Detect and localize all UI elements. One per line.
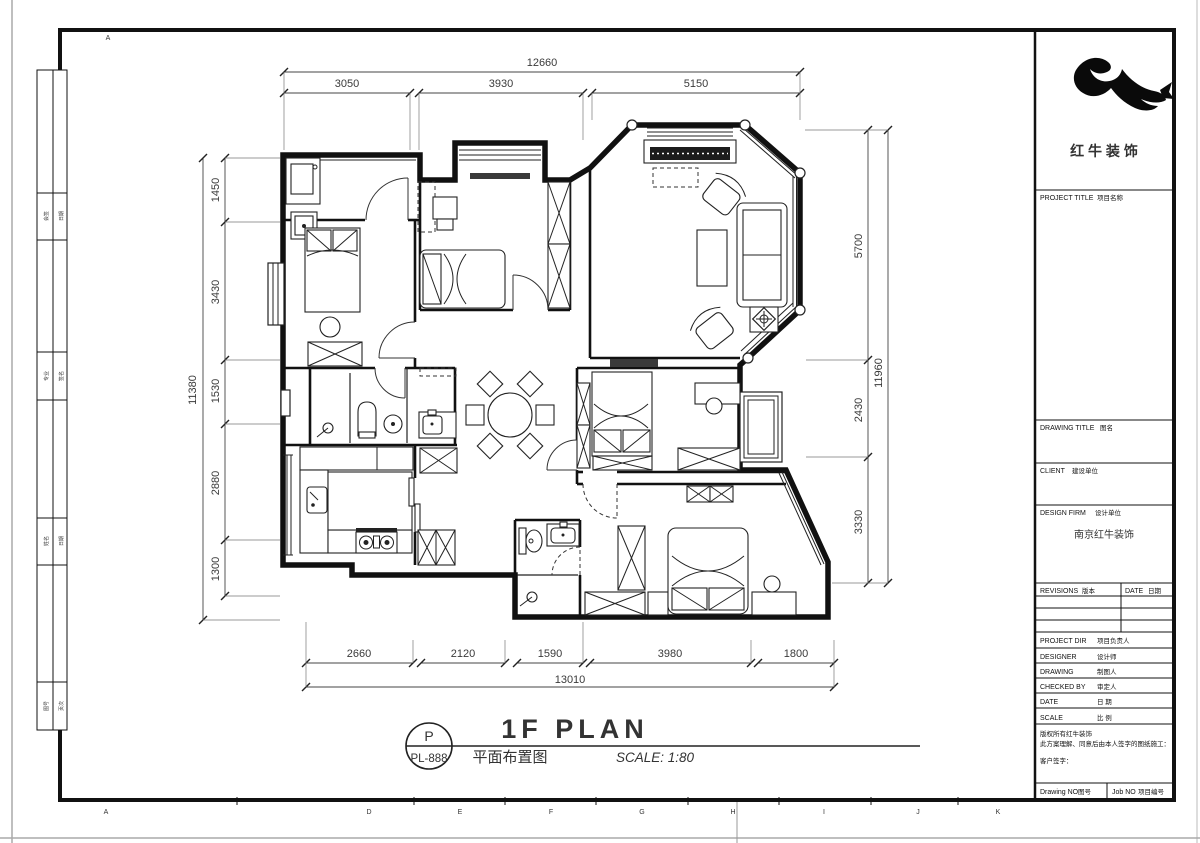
project-dir-label: PROJECT DIR bbox=[1040, 638, 1087, 645]
drawing-by-label-zh: 制图人 bbox=[1097, 667, 1117, 676]
svg-text:E: E bbox=[458, 809, 463, 816]
window-lintel bbox=[610, 359, 658, 367]
master-nightstand bbox=[752, 576, 796, 615]
drawing-no-label: Drawing NO bbox=[1040, 789, 1079, 796]
master-slant-window bbox=[779, 472, 824, 565]
client-label-zh: 建设单位 bbox=[1072, 466, 1099, 475]
svg-text:1530: 1530 bbox=[210, 379, 222, 403]
bedroom2-wardrobe bbox=[548, 182, 570, 308]
bedroom2-bed bbox=[420, 250, 505, 308]
svg-text:3430: 3430 bbox=[210, 280, 222, 304]
plan-title-zh: 平面布置图 bbox=[472, 749, 547, 766]
company-name: 红 牛 装 饰 bbox=[1070, 143, 1138, 159]
furniture bbox=[286, 128, 796, 615]
niche-cabinets bbox=[687, 486, 733, 502]
drawing-no-label-zh: 图号 bbox=[1078, 788, 1092, 796]
scale-label: SCALE bbox=[1040, 715, 1063, 722]
washing-machine bbox=[286, 158, 320, 204]
design-firm-label: DESIGN FIRM bbox=[1040, 510, 1086, 517]
svg-text:图号: 图号 bbox=[44, 701, 50, 711]
utility-door bbox=[366, 178, 408, 220]
svg-text:K: K bbox=[996, 809, 1001, 816]
binding-strip: 会签 日期 专业 签名 姓名 日期 图号 页次 bbox=[37, 70, 67, 730]
design-firm-label-zh: 设计单位 bbox=[1095, 508, 1122, 517]
drawing-canvas: A A D E F G H I J K 会签 bbox=[0, 0, 1200, 843]
coffee-table bbox=[697, 230, 727, 286]
svg-text:签名: 签名 bbox=[58, 371, 65, 381]
revisions-date-label-zh: 日期 bbox=[1148, 587, 1162, 595]
bedroom1-door bbox=[379, 322, 415, 358]
drawing-by-label: DRAWING bbox=[1040, 669, 1074, 676]
frame-top-marker: A bbox=[106, 35, 111, 42]
project-title-label: PROJECT TITLE bbox=[1040, 195, 1094, 202]
svg-text:日期: 日期 bbox=[59, 211, 65, 221]
svg-text:2660: 2660 bbox=[347, 648, 371, 660]
svg-text:H: H bbox=[730, 809, 735, 816]
kitchen-stove bbox=[356, 528, 397, 553]
bedroom1-dresser bbox=[308, 342, 362, 366]
master-shower bbox=[520, 592, 537, 606]
master-bath-sink bbox=[547, 522, 579, 546]
drawing-title-label: DRAWING TITLE bbox=[1040, 425, 1095, 432]
drawing-title-label-zh: 图名 bbox=[1100, 423, 1113, 432]
svg-text:1590: 1590 bbox=[538, 648, 562, 660]
hall-cabinet-top bbox=[420, 448, 457, 473]
copyright-line1: 版权所有红牛装饰 bbox=[1040, 729, 1093, 738]
svg-text:J: J bbox=[916, 809, 920, 816]
hall-cabinet-bottom bbox=[418, 530, 455, 565]
dim-bottom: 2660 2120 1590 3980 1800 13010 bbox=[302, 622, 838, 691]
svg-text:会签: 会签 bbox=[43, 211, 50, 221]
svg-text:2120: 2120 bbox=[451, 648, 475, 660]
company-logo: 红 牛 装 饰 bbox=[1070, 58, 1174, 159]
project-dir-label-zh: 项目负责人 bbox=[1097, 636, 1130, 645]
svg-text:页次: 页次 bbox=[58, 701, 65, 711]
plant-stand bbox=[750, 307, 778, 332]
svg-text:1300: 1300 bbox=[210, 557, 222, 581]
midbedroom-cabinet bbox=[678, 448, 740, 470]
svg-text:5700: 5700 bbox=[853, 234, 865, 258]
copyright-line2: 此方案理解、同意后由本人签字的图纸施工： bbox=[1040, 739, 1170, 748]
stamp-letter: P bbox=[424, 728, 433, 744]
project-title-label-zh: 项目名称 bbox=[1097, 193, 1124, 202]
svg-text:12660: 12660 bbox=[527, 57, 558, 69]
date-label: DATE bbox=[1040, 699, 1058, 706]
svg-text:A: A bbox=[104, 809, 109, 816]
svg-text:D: D bbox=[366, 809, 371, 816]
bath-shower bbox=[317, 423, 333, 437]
customer-sign-label: 客户签字： bbox=[1040, 756, 1073, 765]
revisions-date-label: DATE bbox=[1125, 588, 1143, 595]
svg-text:姓名: 姓名 bbox=[43, 536, 50, 546]
svg-text:11380: 11380 bbox=[187, 375, 199, 405]
client-label: CLIENT bbox=[1040, 468, 1066, 475]
floor-plan-sheet: A A D E F G H I J K 会签 bbox=[0, 0, 1200, 843]
master-bedroom-door bbox=[583, 484, 617, 518]
bull-logo-icon bbox=[1074, 58, 1174, 111]
svg-text:F: F bbox=[549, 809, 553, 816]
bath-toilet bbox=[358, 402, 376, 438]
title-stamp: P PL-888 1F PLAN 平面布置图 SCALE: 1:80 bbox=[406, 714, 920, 769]
midbedroom-bed bbox=[592, 372, 652, 456]
dim-left: 11380 1450 3430 1530 2880 1300 bbox=[187, 154, 280, 624]
revisions-label-zh: 版本 bbox=[1082, 586, 1096, 595]
kitchen-fridge bbox=[307, 487, 327, 513]
tv-wall bbox=[644, 128, 736, 163]
designer-label: DESIGNER bbox=[1040, 654, 1077, 661]
dining-table bbox=[466, 371, 554, 458]
svg-text:2880: 2880 bbox=[210, 471, 222, 495]
sofa bbox=[737, 203, 787, 307]
svg-text:5150: 5150 bbox=[684, 78, 708, 90]
designer-label-zh: 设计师 bbox=[1097, 652, 1117, 661]
svg-text:3930: 3930 bbox=[489, 78, 513, 90]
bedroom1-stool bbox=[320, 317, 340, 337]
window-sill bbox=[470, 173, 530, 179]
dim-right: 5700 2430 3330 11960 bbox=[805, 126, 892, 587]
stamp-code: PL-888 bbox=[410, 753, 447, 765]
midbedroom-bed-bench bbox=[593, 456, 652, 470]
plan-scale: SCALE: 1:80 bbox=[616, 750, 695, 765]
bath-left-window bbox=[281, 390, 290, 416]
scale-label-zh: 比 例 bbox=[1097, 713, 1112, 722]
svg-text:专业: 专业 bbox=[43, 371, 50, 381]
midbedroom-wardrobe bbox=[577, 383, 590, 468]
svg-text:11960: 11960 bbox=[873, 358, 885, 388]
midbedroom-desk bbox=[695, 383, 740, 414]
plan-title-en: 1F PLAN bbox=[501, 714, 649, 744]
checked-by-label: CHECKED BY bbox=[1040, 684, 1086, 691]
bedroom1-bed bbox=[305, 228, 360, 312]
svg-text:2430: 2430 bbox=[853, 398, 865, 422]
bath-vanity bbox=[419, 368, 456, 438]
midbedroom-bay-window bbox=[740, 392, 782, 462]
svg-text:G: G bbox=[639, 809, 644, 816]
bedroom2-desk bbox=[433, 197, 457, 230]
midbedroom-door bbox=[547, 440, 577, 470]
bedroom2-door bbox=[513, 275, 548, 310]
svg-text:3980: 3980 bbox=[658, 648, 682, 660]
job-no-label-zh: 项目编号 bbox=[1138, 787, 1165, 796]
svg-text:3330: 3330 bbox=[853, 510, 865, 534]
master-bath-toilet bbox=[519, 528, 542, 554]
master-wardrobe bbox=[585, 526, 668, 615]
svg-text:13010: 13010 bbox=[555, 674, 586, 686]
frame-bottom-letters: A D E F G H I J K bbox=[104, 809, 1001, 816]
living-rug bbox=[653, 168, 698, 187]
svg-text:日期: 日期 bbox=[59, 536, 65, 546]
master-bath-door bbox=[552, 547, 580, 575]
bathroom-door bbox=[375, 368, 405, 398]
svg-text:1450: 1450 bbox=[210, 178, 222, 202]
svg-text:1800: 1800 bbox=[784, 648, 808, 660]
floor-plan: 12660 3050 3930 5150 11380 bbox=[187, 57, 920, 769]
svg-text:3050: 3050 bbox=[335, 78, 359, 90]
bedroom1-bay-window bbox=[268, 263, 284, 325]
bedroom2-top-window bbox=[459, 150, 541, 160]
armchair-2 bbox=[686, 302, 737, 353]
revisions-label: REVISIONS bbox=[1040, 588, 1078, 595]
design-firm-value: 南京红牛装饰 bbox=[1074, 528, 1134, 541]
date-label-zh: 日 期 bbox=[1097, 698, 1112, 706]
svg-text:I: I bbox=[823, 809, 825, 816]
master-bed bbox=[668, 528, 748, 614]
job-no-label: Job NO bbox=[1112, 789, 1136, 796]
checked-by-label-zh: 审定人 bbox=[1097, 682, 1117, 691]
title-block: 红 牛 装 饰 PROJECT TITLE 项目名称 DRAWING TITLE… bbox=[1035, 30, 1174, 800]
